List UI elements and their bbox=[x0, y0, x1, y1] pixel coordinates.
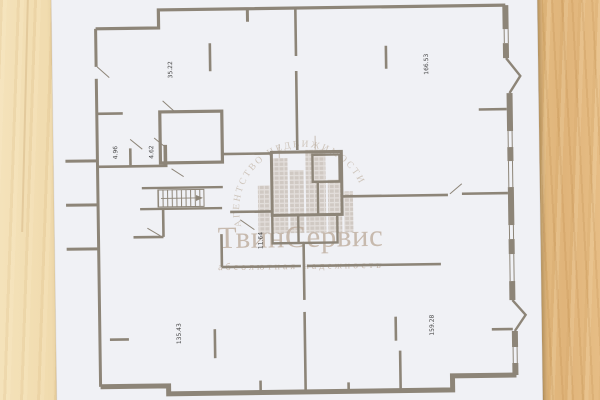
room-area-label: 11.64 bbox=[257, 232, 264, 249]
floor-plan-photo: АГЕНТСТВО НЕДВИЖИМОСТИ ТвинСервис абсолю… bbox=[0, 0, 600, 400]
room-area-label: 35.22 bbox=[167, 61, 174, 78]
room-area-label: 135.43 bbox=[176, 323, 183, 344]
left-wing-wall bbox=[230, 211, 272, 212]
wall-left-of-core bbox=[222, 153, 271, 154]
watermark-brand: ТвинСервис bbox=[218, 218, 384, 255]
room-area-label: 4.96 bbox=[112, 146, 119, 160]
room-area-label: 4.62 bbox=[148, 145, 155, 159]
room-area-label: 166.53 bbox=[423, 53, 430, 74]
room-area-label: 159.28 bbox=[429, 314, 436, 335]
